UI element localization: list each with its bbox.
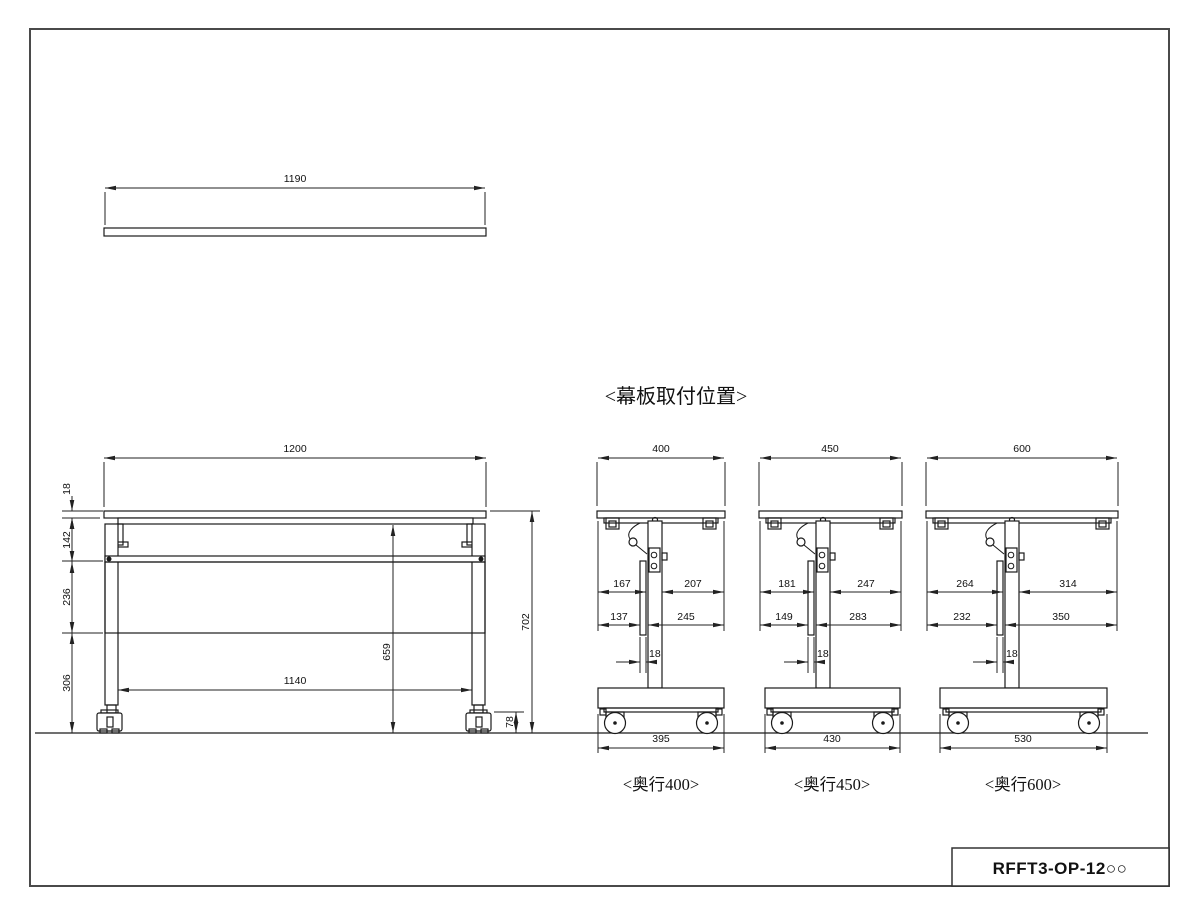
release-lever [629,523,647,554]
dim-label-lower-rear: 283 [849,611,867,623]
subframe-rail [118,518,473,524]
section-title: <幕板取付位置> [605,385,748,408]
side-view-depth-400: 400 167 207 137 245 [597,443,725,794]
leg-column [648,521,662,688]
leg-column [1005,521,1019,688]
dim-label-panel-height: 236 [61,588,73,606]
title-block: RFFT3-OP-12○○ [952,848,1169,886]
side-view-caption: <奥行400> [623,775,699,794]
dim-label-upper-front: 264 [956,578,974,590]
modesty-panel-edge [808,561,814,635]
dim-label-overall-height: 702 [520,613,532,631]
dim-label-depth: 600 [1013,443,1031,455]
dim-label-base-width: 395 [652,733,670,745]
dim-label-top-view-width: 1190 [284,173,307,185]
depth-dimension [597,458,725,506]
dim-label-underside-height: 659 [381,643,393,661]
rear-caster-side [873,709,899,734]
side-view-depth-450: 450 181 247 149 283 [759,443,902,794]
right-caster [466,710,491,733]
base-foot [940,688,1107,708]
dim-label-lower-rear: 245 [677,611,695,623]
rear-caster-side [1079,709,1105,734]
side-view-depth-600: 600 264 314 232 350 [926,443,1118,794]
dim-label-front-width: 1200 [283,443,307,455]
dim-label-upper-rear: 207 [684,578,702,590]
dim-label-panel-thickness: 18 [1006,648,1018,660]
left-leg-insert [107,705,116,713]
front-view: 1200 [61,443,540,733]
cross-rail [105,556,485,562]
dim-label-lower-front: 149 [775,611,793,623]
dim-label-base-width: 430 [823,733,841,745]
release-lever [797,523,815,554]
tabletop-front-outline [104,511,486,518]
dim-label-depth: 400 [652,443,670,455]
dim-label-upper-rear: 314 [1059,578,1077,590]
tabletop-side [759,511,902,518]
tabletop-plan-outline [104,228,486,236]
dim-label-top-thickness: 18 [61,483,73,495]
side-view-caption: <奥行600> [985,775,1061,794]
dim-label-upper-front: 167 [613,578,631,590]
side-view-caption: <奥行450> [794,775,870,794]
left-leg [105,524,118,705]
dim-label-depth: 450 [821,443,839,455]
dim-label-lower-front: 232 [953,611,971,623]
top-view-dimension-lines [105,188,485,225]
depth-dimension [759,458,902,506]
front-caster-side [767,709,793,734]
rail-pivot-left [107,557,112,562]
modesty-panel-front [105,562,485,633]
cad-drawing-page: 1190 1200 [0,0,1200,916]
dim-label-lower-front: 137 [610,611,628,623]
left-caster [97,710,122,733]
release-lever [986,523,1004,554]
depth-dimension [926,458,1118,506]
dim-label-leg-span: 1140 [284,675,307,687]
subframe-side [933,518,1111,523]
dim-label-lower-clearance: 306 [61,674,73,692]
dim-label-panel-thickness: 18 [649,648,661,660]
rear-caster-side [697,709,723,734]
dim-label-panel-thickness: 18 [817,648,829,660]
leg-column [816,521,830,688]
front-caster-side [600,709,626,734]
rail-pivot-right [479,557,484,562]
modesty-panel-edge [997,561,1003,635]
dim-label-upper-rear: 247 [857,578,875,590]
part-number: RFFT3-OP-12○○ [993,859,1128,878]
right-leg [472,524,485,705]
right-leg-insert [474,705,483,713]
base-foot [765,688,900,708]
top-view: 1190 [104,173,486,236]
dim-label-bracket-zone: 142 [61,531,73,549]
base-foot [598,688,724,708]
dim-label-caster-height: 78 [504,716,516,728]
dim-label-base-width: 530 [1014,733,1032,745]
front-width-dimension [104,458,486,507]
dim-label-upper-front: 181 [778,578,796,590]
modesty-panel-edge [640,561,646,635]
dim-label-lower-rear: 350 [1052,611,1070,623]
front-caster-side [943,709,969,734]
base-foot-underside [946,708,1101,712]
technical-drawing-canvas: 1190 1200 [0,0,1200,916]
tabletop-side [597,511,725,518]
tabletop-side [926,511,1118,518]
